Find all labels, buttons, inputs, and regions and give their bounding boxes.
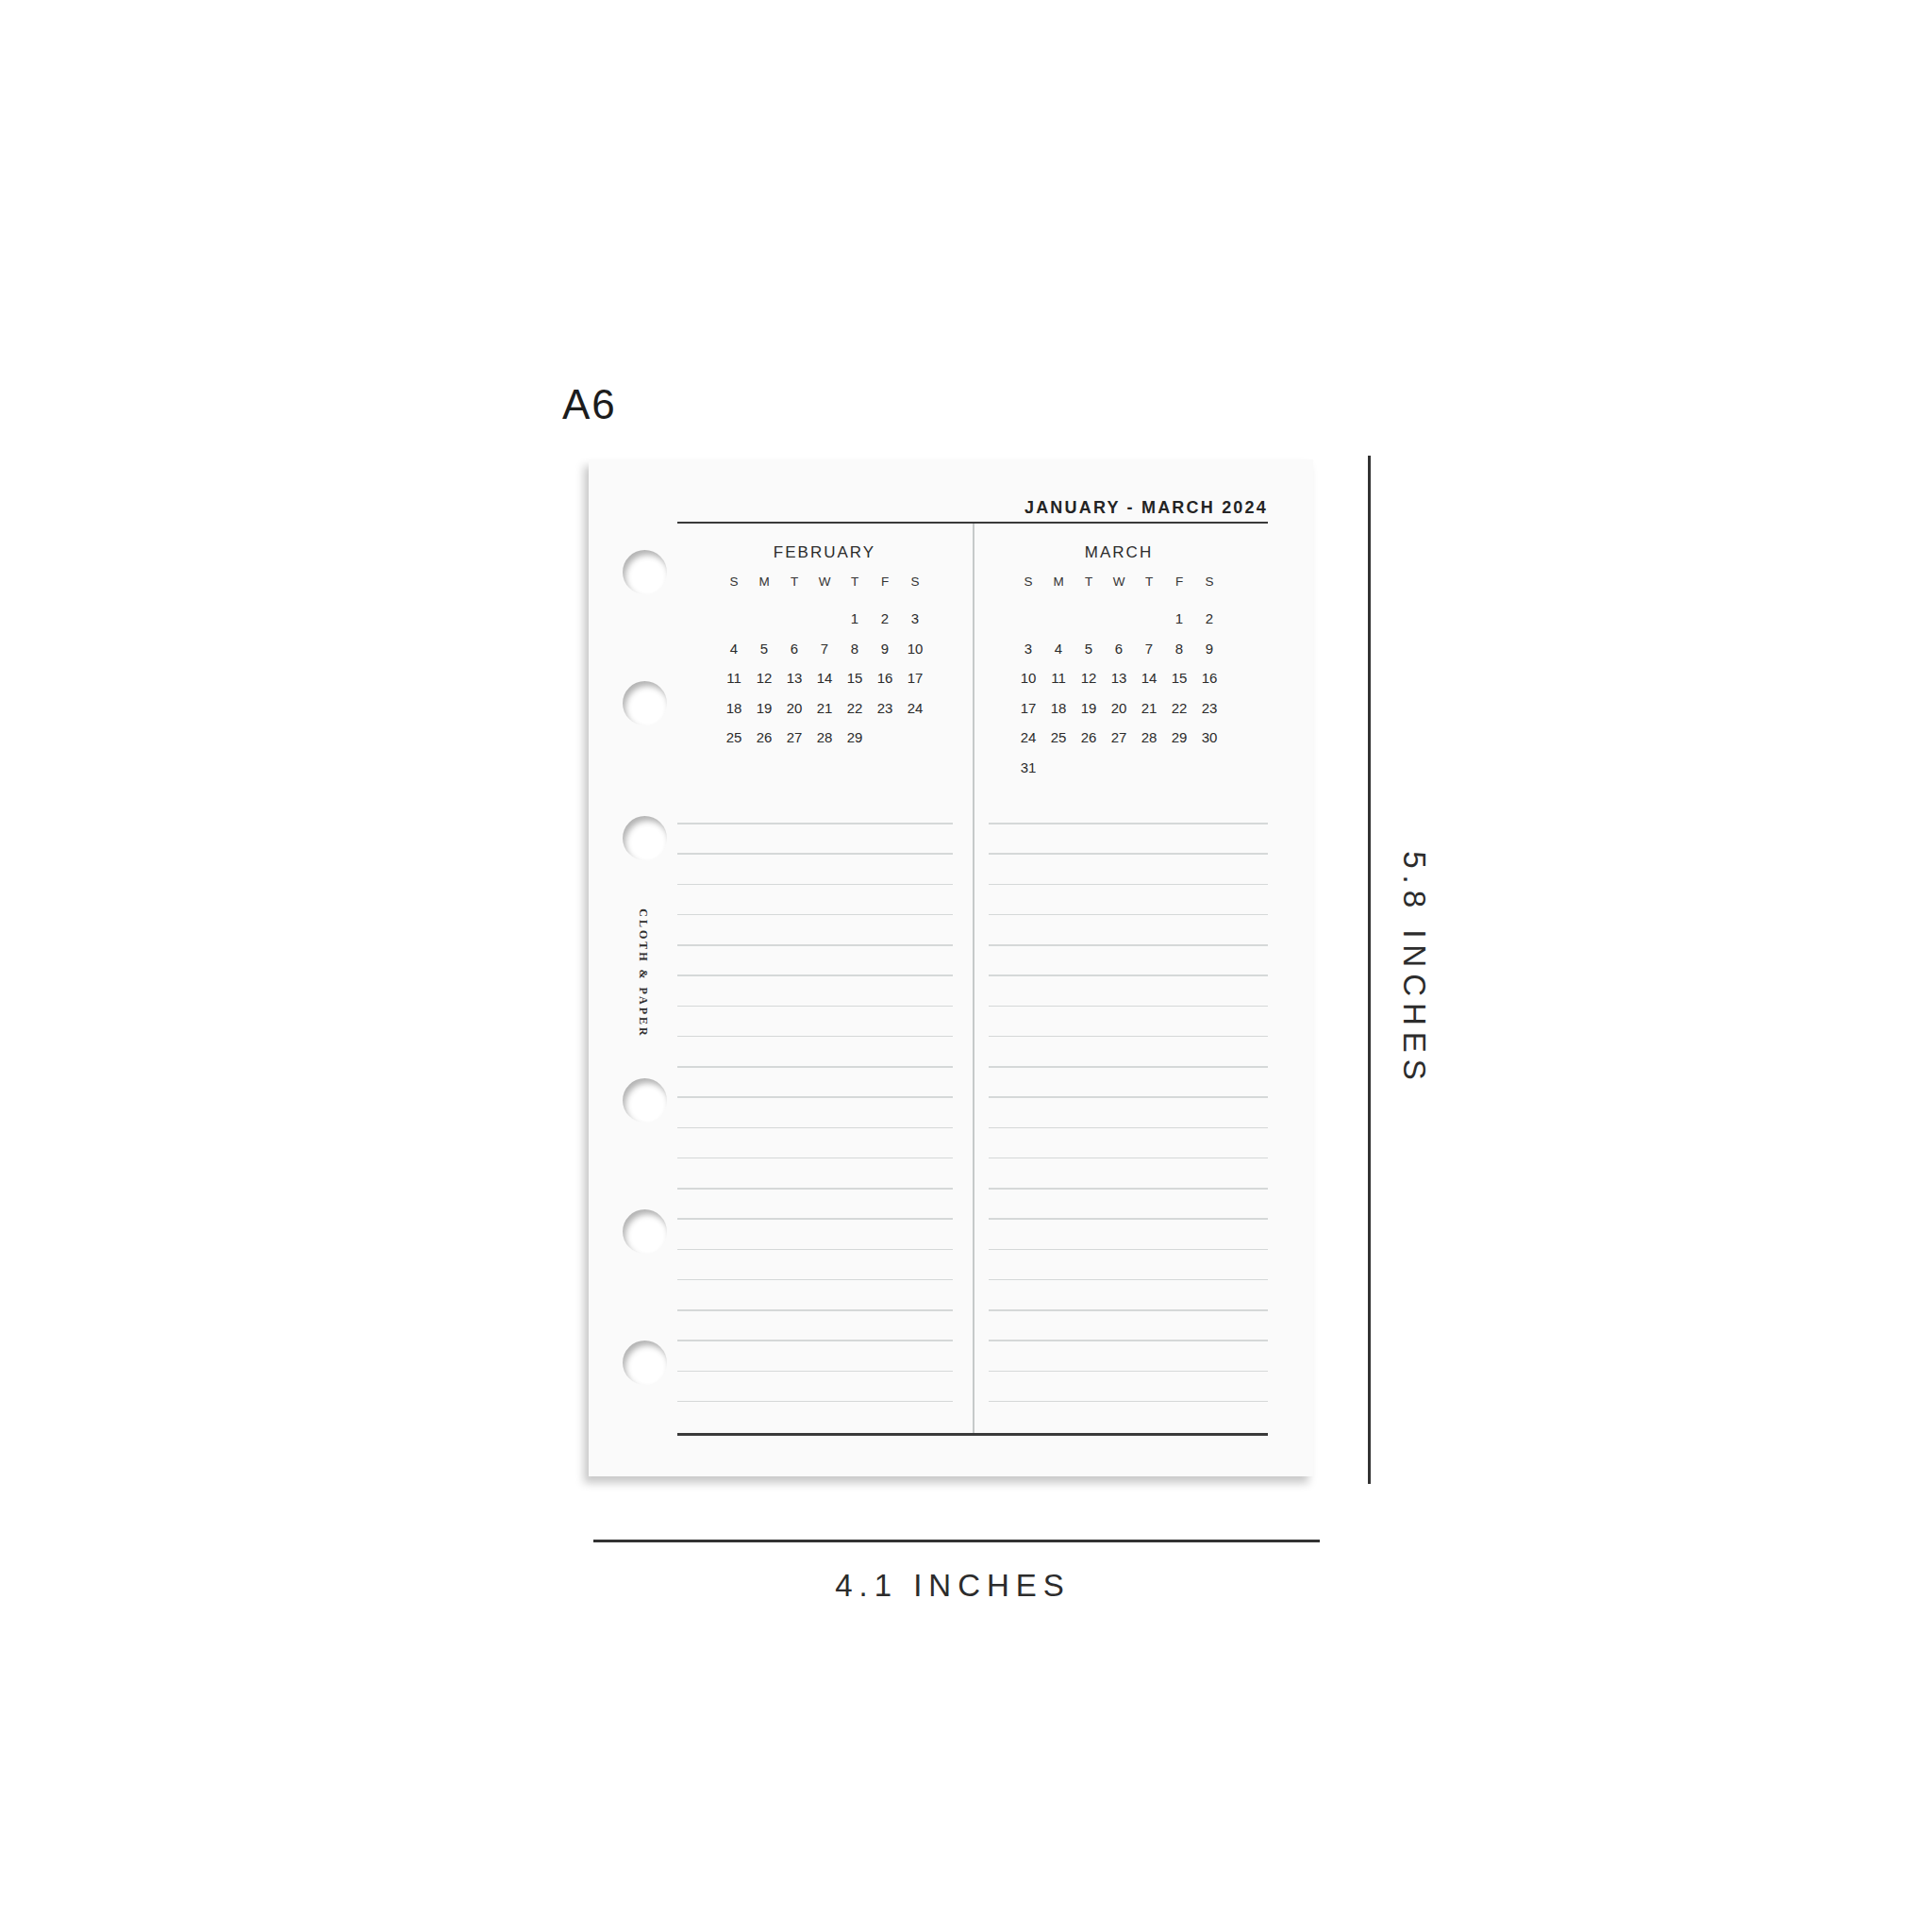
calendar-date: 18	[719, 693, 749, 724]
calendar-date: 2	[1194, 604, 1224, 634]
note-line	[677, 853, 953, 855]
calendar-date: 11	[719, 663, 749, 693]
month-march: MARCH SMTWTFS 12345678910111213141516171…	[1013, 542, 1224, 788]
calendar-date: 16	[870, 663, 900, 693]
width-dimension-label: 4.1 INCHES	[835, 1568, 1071, 1604]
calendar-date: 23	[870, 693, 900, 724]
month-title: MARCH	[1013, 542, 1224, 562]
day-header: T	[1074, 566, 1104, 596]
note-line	[677, 1127, 953, 1129]
note-line	[989, 1401, 1268, 1403]
calendar-date: 24	[1013, 723, 1043, 753]
month-title: FEBRUARY	[719, 542, 930, 562]
note-line	[989, 1309, 1268, 1311]
note-line	[677, 914, 953, 916]
calendar-date: 24	[900, 693, 930, 724]
calendar-date: 21	[1134, 693, 1164, 724]
day-header: T	[779, 566, 809, 596]
day-header: S	[1013, 566, 1043, 596]
note-line	[989, 1006, 1268, 1008]
calendar-date: 22	[1164, 693, 1194, 724]
note-line	[989, 1279, 1268, 1281]
calendar-date: 3	[900, 604, 930, 634]
punch-hole	[623, 681, 667, 725]
note-line	[677, 1279, 953, 1281]
planner-page: JANUARY - MARCH 2024 CLOTH & PAPER FEBRU…	[589, 459, 1313, 1476]
calendar-empty	[1074, 753, 1104, 783]
calendar-date: 10	[1013, 663, 1043, 693]
calendar-empty	[870, 723, 900, 753]
punch-hole	[623, 816, 667, 860]
calendar-date: 9	[1194, 634, 1224, 664]
calendar-empty	[779, 604, 809, 634]
note-line	[989, 1096, 1268, 1098]
note-line	[989, 974, 1268, 976]
calendar-empty	[1104, 753, 1134, 783]
note-line	[677, 1340, 953, 1341]
note-line	[989, 1158, 1268, 1159]
column-divider	[973, 524, 974, 1433]
height-dimension-label: 5.8 INCHES	[1396, 851, 1432, 1087]
calendar-date: 25	[1043, 723, 1074, 753]
calendar-date: 22	[840, 693, 870, 724]
calendar-empty	[1104, 604, 1134, 634]
month-february: FEBRUARY SMTWTFS 12345678910111213141516…	[719, 542, 930, 788]
calendar-date: 23	[1194, 693, 1224, 724]
calendar-date: 6	[1104, 634, 1134, 664]
calendar-empty	[1134, 604, 1164, 634]
note-line	[989, 884, 1268, 886]
width-dimension-line	[593, 1540, 1320, 1542]
calendar-empty	[1134, 753, 1164, 783]
calendar-empty	[1194, 753, 1224, 783]
calendar-date: 1	[840, 604, 870, 634]
calendar-empty	[1043, 604, 1074, 634]
calendar-date: 21	[809, 693, 840, 724]
note-line	[677, 823, 953, 824]
calendar-empty	[809, 604, 840, 634]
note-line	[677, 1371, 953, 1373]
note-line	[677, 1309, 953, 1311]
calendar-date: 5	[1074, 634, 1104, 664]
day-header: F	[870, 566, 900, 596]
calendar-date: 10	[900, 634, 930, 664]
calendar-date: 28	[809, 723, 840, 753]
calendar-empty	[1043, 753, 1074, 783]
note-line	[677, 884, 953, 886]
calendar-date: 7	[1134, 634, 1164, 664]
punch-hole	[623, 1078, 667, 1123]
calendar-empty	[1074, 604, 1104, 634]
calendar-date: 4	[1043, 634, 1074, 664]
day-header: S	[900, 566, 930, 596]
page-header-title: JANUARY - MARCH 2024	[1024, 498, 1268, 518]
height-dimension-line	[1368, 456, 1371, 1484]
calendar-date: 19	[749, 693, 779, 724]
day-header: T	[840, 566, 870, 596]
note-line	[677, 1188, 953, 1190]
note-line	[989, 1188, 1268, 1190]
note-line	[989, 1371, 1268, 1373]
calendar-date: 16	[1194, 663, 1224, 693]
calendar-date: 31	[1013, 753, 1043, 783]
calendar-date: 1	[1164, 604, 1194, 634]
calendar-date: 30	[1194, 723, 1224, 753]
calendar-date: 15	[1164, 663, 1194, 693]
day-header-row: SMTWTFS	[1013, 566, 1224, 596]
calendar-date: 18	[1043, 693, 1074, 724]
calendar-empty	[719, 604, 749, 634]
note-line	[677, 1006, 953, 1008]
calendar-date: 25	[719, 723, 749, 753]
bottom-rule	[677, 1433, 1268, 1436]
calendar-date: 2	[870, 604, 900, 634]
calendar-date: 29	[1164, 723, 1194, 753]
note-line	[989, 1066, 1268, 1068]
size-label: A6	[562, 381, 617, 428]
day-header: S	[719, 566, 749, 596]
calendar-date: 19	[1074, 693, 1104, 724]
calendar-date: 6	[779, 634, 809, 664]
note-line	[989, 1036, 1268, 1038]
calendar-empty	[1013, 604, 1043, 634]
note-line	[677, 1066, 953, 1068]
day-header: T	[1134, 566, 1164, 596]
note-line	[677, 1158, 953, 1159]
note-line	[989, 1127, 1268, 1129]
day-header: W	[809, 566, 840, 596]
calendar-date: 12	[749, 663, 779, 693]
calendar-date: 26	[1074, 723, 1104, 753]
note-line	[677, 1036, 953, 1038]
day-header: M	[749, 566, 779, 596]
product-mockup: A6 JANUARY - MARCH 2024 CLOTH & PAPER FE…	[0, 0, 1932, 1932]
calendar-date: 27	[1104, 723, 1134, 753]
note-line	[989, 944, 1268, 946]
day-header: W	[1104, 566, 1134, 596]
calendar-date: 5	[749, 634, 779, 664]
note-line	[677, 1249, 953, 1251]
note-line	[677, 1096, 953, 1098]
calendar-date: 17	[1013, 693, 1043, 724]
punch-hole	[623, 1209, 667, 1254]
calendar-date: 29	[840, 723, 870, 753]
calendar-date: 8	[840, 634, 870, 664]
calendar-date: 7	[809, 634, 840, 664]
calendar-empty	[749, 604, 779, 634]
brand-logo-text: CLOTH & PAPER	[636, 908, 650, 1038]
calendar-date: 15	[840, 663, 870, 693]
punch-hole	[623, 1341, 667, 1385]
calendar-date: 13	[1104, 663, 1134, 693]
note-line	[989, 1218, 1268, 1220]
calendar-date: 8	[1164, 634, 1194, 664]
calendar-empty	[900, 723, 930, 753]
day-header: S	[1194, 566, 1224, 596]
calendar-date: 26	[749, 723, 779, 753]
calendar-date: 14	[809, 663, 840, 693]
note-line	[989, 823, 1268, 824]
note-line	[677, 1218, 953, 1220]
calendar-date: 11	[1043, 663, 1074, 693]
note-line	[989, 853, 1268, 855]
note-line	[989, 1249, 1268, 1251]
note-line	[989, 914, 1268, 916]
punch-hole	[623, 550, 667, 594]
note-line	[677, 944, 953, 946]
month-grid: 1234567891011121314151617181920212223242…	[1013, 604, 1224, 782]
calendar-date: 3	[1013, 634, 1043, 664]
calendar-date: 12	[1074, 663, 1104, 693]
calendar-date: 27	[779, 723, 809, 753]
day-header: F	[1164, 566, 1194, 596]
calendar-date: 20	[779, 693, 809, 724]
note-line	[989, 1340, 1268, 1341]
month-grid: 1234567891011121314151617181920212223242…	[719, 604, 930, 753]
calendar-empty	[1164, 753, 1194, 783]
calendar-date: 28	[1134, 723, 1164, 753]
calendar-date: 17	[900, 663, 930, 693]
note-line	[677, 974, 953, 976]
calendar-date: 9	[870, 634, 900, 664]
day-header: M	[1043, 566, 1074, 596]
calendar-date: 14	[1134, 663, 1164, 693]
note-line	[677, 1401, 953, 1403]
calendar-date: 20	[1104, 693, 1134, 724]
calendar-date: 4	[719, 634, 749, 664]
calendar-date: 13	[779, 663, 809, 693]
day-header-row: SMTWTFS	[719, 566, 930, 596]
